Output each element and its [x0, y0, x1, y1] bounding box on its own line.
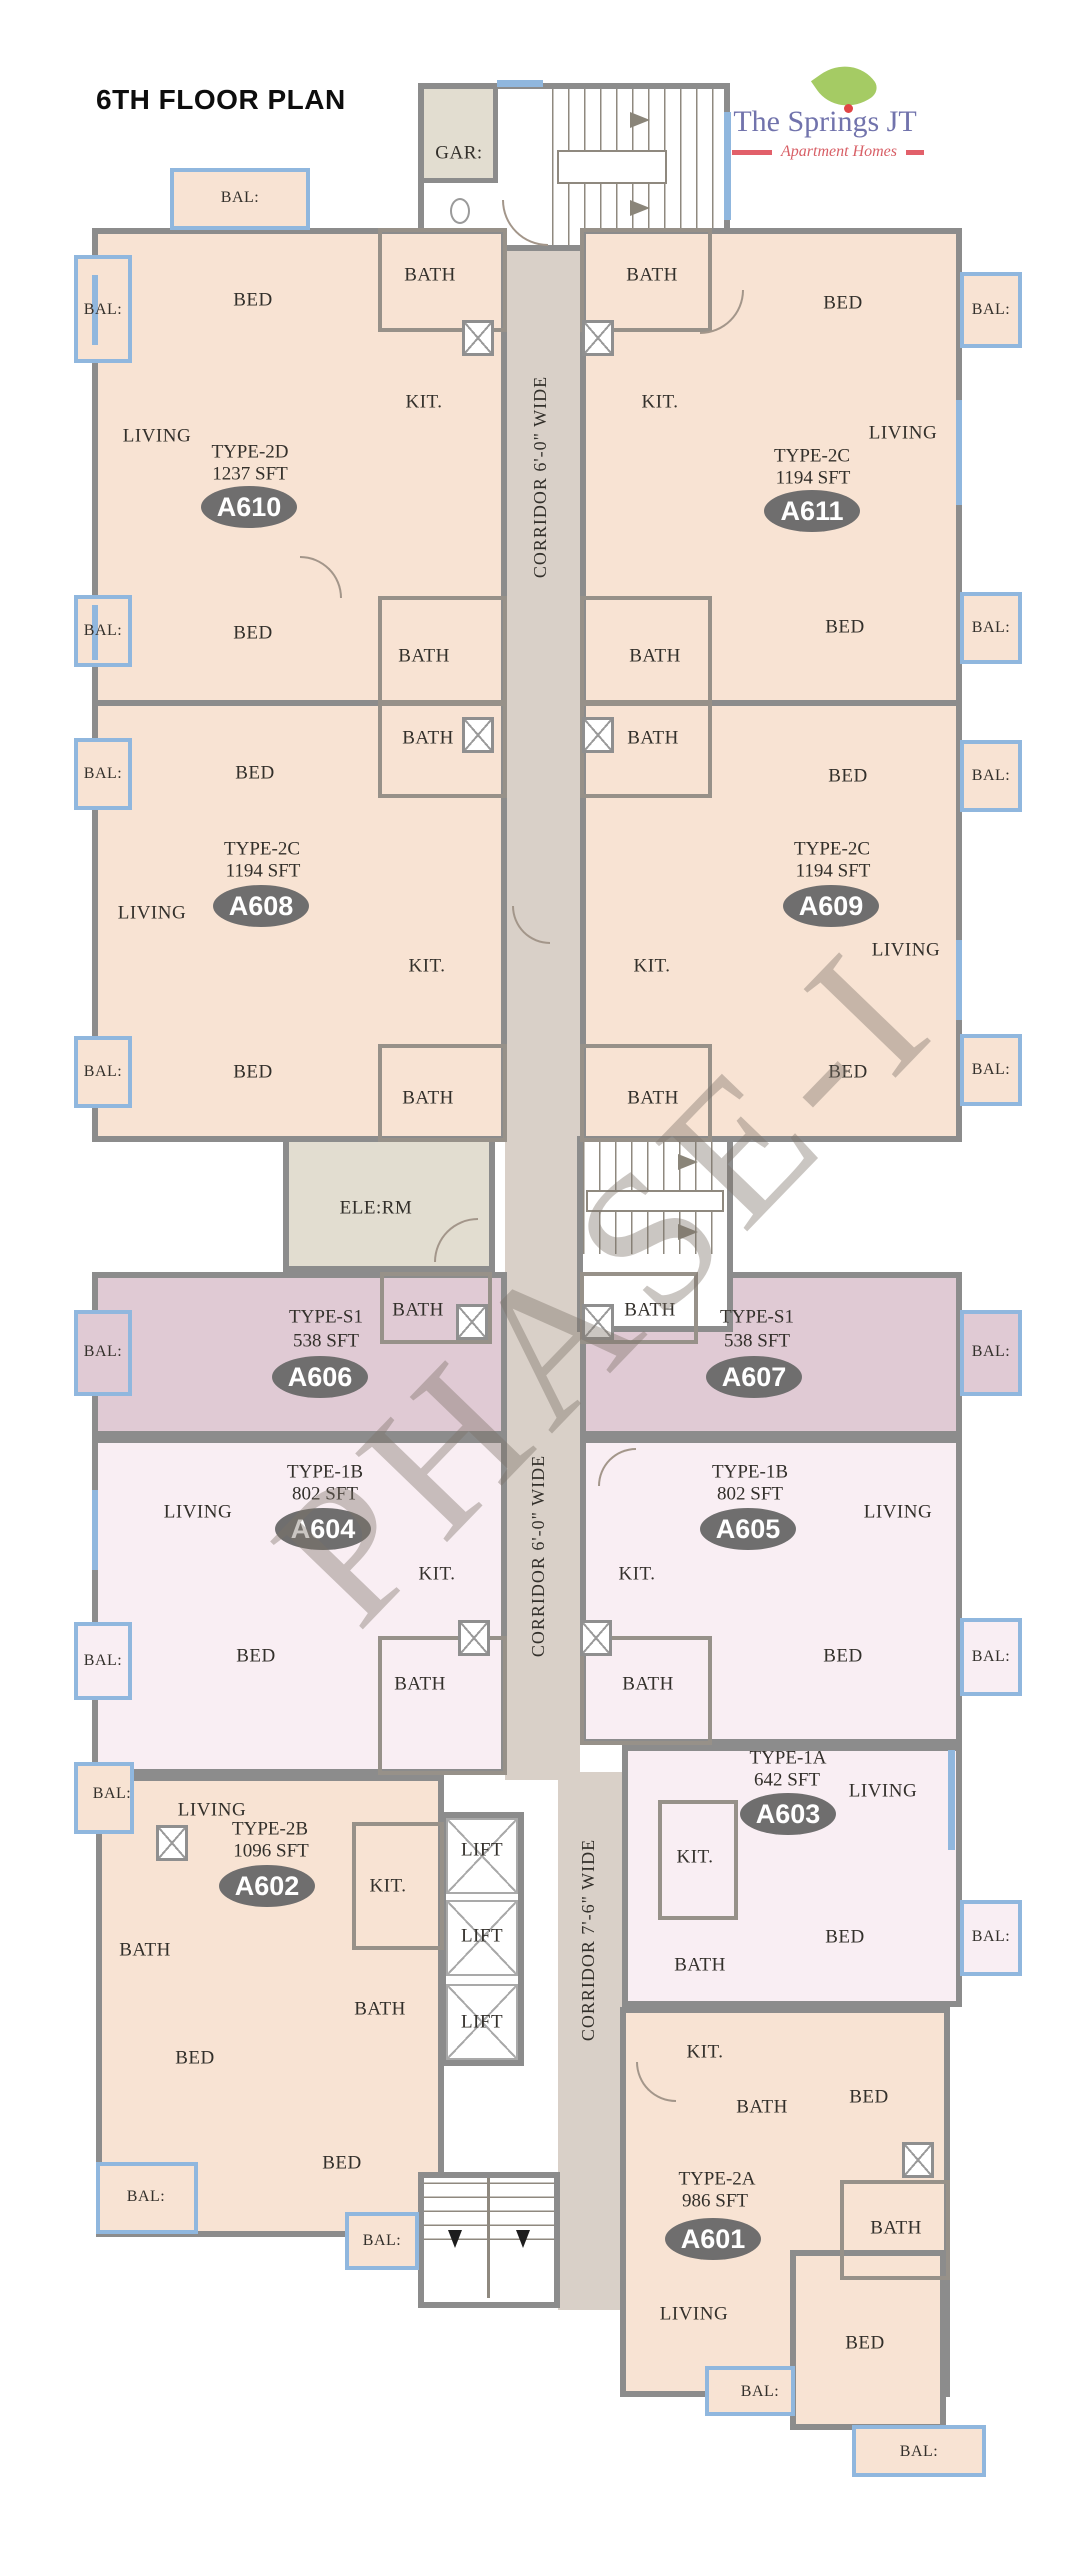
room-label-balcony: BAL:	[972, 1344, 1010, 1360]
room-label-balcony: BAL:	[900, 2444, 938, 2460]
unit-area-a608: 1194 SFT	[226, 862, 301, 881]
room-label-bath: BATH	[402, 729, 454, 748]
unit-area-a605: 802 SFT	[717, 1485, 783, 1504]
corridor-label-lower: CORRIDOR 7'-6" WIDE	[579, 1839, 597, 2041]
unit-type-a602: TYPE-2B	[232, 1820, 308, 1839]
unit-type-a606: TYPE-S1	[289, 1308, 363, 1327]
room-label-bed: BED	[825, 618, 865, 637]
room-label-living: LIVING	[164, 1503, 232, 1522]
room-label-bath: BATH	[627, 729, 679, 748]
page-title: 6TH FLOOR PLAN	[96, 84, 346, 116]
stairs-down-arrow-icon	[448, 2230, 462, 2248]
unit-area-a603: 642 SFT	[754, 1771, 820, 1790]
window-strip	[497, 80, 543, 87]
stairs-arrow-icon	[630, 112, 650, 128]
room-label-bed: BED	[849, 2088, 889, 2107]
unit-badge-a602: A602	[219, 1865, 315, 1907]
room-label-balcony: BAL:	[221, 190, 259, 206]
duct-shaft	[582, 717, 614, 753]
room-label-balcony: BAL:	[972, 1649, 1010, 1665]
duct-shaft	[462, 717, 494, 753]
unit-badge-a605: A605	[700, 1508, 796, 1550]
room-label-living: LIVING	[869, 424, 937, 443]
room-label-bath: BATH	[394, 1675, 446, 1694]
room-label-balcony: BAL:	[972, 1062, 1010, 1078]
room-label-bed: BED	[233, 1063, 273, 1082]
unit-area-a611: 1194 SFT	[776, 469, 851, 488]
room-label-bath: BATH	[119, 1941, 171, 1960]
room-label-kitchen: KIT.	[619, 1565, 656, 1584]
duct-shaft	[156, 1825, 188, 1861]
unit-area-a601: 986 SFT	[682, 2192, 748, 2211]
room-label-balcony: BAL:	[741, 2384, 779, 2400]
unit-badge-a608: A608	[213, 885, 309, 927]
room-label-bed: BED	[233, 624, 273, 643]
room-label-bath: BATH	[354, 2000, 406, 2019]
room-label-bath: BATH	[622, 1675, 674, 1694]
window-strip	[948, 1750, 955, 1850]
unit-type-a605: TYPE-1B	[712, 1463, 788, 1482]
room-label-living: LIVING	[123, 427, 191, 446]
room-label-balcony: BAL:	[84, 1653, 122, 1669]
unit-badge-a611: A611	[764, 490, 860, 532]
room-label-balcony: BAL:	[93, 1786, 131, 1802]
room-label-lift: LIFT	[461, 1841, 503, 1860]
stairs-down-arrow-icon	[516, 2230, 530, 2248]
unit-type-a610: TYPE-2D	[211, 443, 288, 462]
room-label-living: LIVING	[872, 941, 940, 960]
room-label-bed: BED	[235, 764, 275, 783]
unit-area-a602: 1096 SFT	[233, 1842, 309, 1861]
toilet-icon	[450, 198, 470, 224]
floor-plan-page: 6TH FLOOR PLAN The Springs JT Apartment …	[0, 0, 1075, 2560]
room-label-lift: LIFT	[461, 1927, 503, 1946]
room-label-gar: GAR:	[435, 144, 482, 163]
room-label-bed: BED	[823, 294, 863, 313]
room-label-lift: LIFT	[461, 2013, 503, 2032]
room-label-balcony: BAL:	[84, 623, 122, 639]
brand-tagline-row: Apartment Homes	[732, 143, 924, 161]
room-label-bed: BED	[236, 1647, 276, 1666]
room-label-balcony: BAL:	[84, 302, 122, 318]
brand-logo: The Springs JT Apartment Homes	[728, 60, 1028, 172]
room-label-kitchen: KIT.	[642, 393, 679, 412]
room-label-balcony: BAL:	[972, 1929, 1010, 1945]
window-strip	[724, 112, 731, 220]
unit-type-a601: TYPE-2A	[678, 2170, 755, 2189]
room-label-kitchen: KIT.	[406, 393, 443, 412]
room-label-balcony: BAL:	[972, 620, 1010, 636]
unit-type-a609: TYPE-2C	[794, 840, 870, 859]
room-label-bed: BED	[825, 1928, 865, 1947]
room-label-kitchen: KIT.	[370, 1877, 407, 1896]
stairs-arrow-icon	[630, 200, 650, 216]
tagline-bar-left	[732, 150, 772, 155]
duct-shaft	[462, 320, 494, 356]
room-label-bath: BATH	[404, 266, 456, 285]
unit-type-a611: TYPE-2C	[774, 447, 850, 466]
duct-shaft	[580, 1620, 612, 1656]
unit-area-a609: 1194 SFT	[796, 862, 871, 881]
room-label-bath: BATH	[674, 1956, 726, 1975]
brand-tagline: Apartment Homes	[781, 143, 897, 161]
unit-badge-a607: A607	[706, 1356, 802, 1398]
room-label-kitchen: KIT.	[409, 957, 446, 976]
window-strip	[956, 400, 962, 505]
room-label-bath: BATH	[870, 2219, 922, 2238]
room-label-kitchen: KIT.	[634, 957, 671, 976]
room-label-bath: BATH	[626, 266, 678, 285]
room-label-bed: BED	[175, 2049, 215, 2068]
room-label-living: LIVING	[849, 1782, 917, 1801]
room-label-bath: BATH	[629, 647, 681, 666]
top-stairs-landing	[557, 150, 667, 184]
bottom-stairs-rail	[487, 2178, 490, 2298]
room-label-living: LIVING	[118, 904, 186, 923]
room-label-living: LIVING	[178, 1801, 246, 1820]
unit-area-a610: 1237 SFT	[212, 465, 288, 484]
room-label-bed: BED	[233, 291, 273, 310]
room-label-kitchen: KIT.	[687, 2043, 724, 2062]
room-label-bed: BED	[845, 2334, 885, 2353]
unit-type-a608: TYPE-2C	[224, 840, 300, 859]
room-label-bed: BED	[823, 1647, 863, 1666]
room-label-ele-rm: ELE:RM	[340, 1199, 413, 1218]
unit-badge-a603: A603	[740, 1793, 836, 1835]
unit-badge-a601: A601	[665, 2218, 761, 2260]
room-label-bath: BATH	[402, 1089, 454, 1108]
unit-area-a606: 538 SFT	[293, 1332, 359, 1351]
room-label-bed: BED	[322, 2154, 362, 2173]
unit-type-a603: TYPE-1A	[749, 1749, 826, 1768]
duct-shaft	[902, 2142, 934, 2178]
room-label-living: LIVING	[864, 1503, 932, 1522]
unit-badge-a610: A610	[201, 486, 297, 528]
duct-shaft	[582, 320, 614, 356]
gar-room	[424, 89, 498, 183]
room-label-balcony: BAL:	[972, 302, 1010, 318]
room-label-living: LIVING	[660, 2305, 728, 2324]
duct-shaft	[458, 1620, 490, 1656]
room-label-balcony: BAL:	[84, 1344, 122, 1360]
window-strip	[956, 940, 962, 1020]
room-label-balcony: BAL:	[127, 2189, 165, 2205]
tagline-bar-right	[906, 150, 924, 155]
room-label-balcony: BAL:	[363, 2233, 401, 2249]
room-label-bed: BED	[828, 767, 868, 786]
room-label-kitchen: KIT.	[677, 1848, 714, 1867]
room-label-bath: BATH	[398, 647, 450, 666]
unit-area-a607: 538 SFT	[724, 1332, 790, 1351]
room-label-balcony: BAL:	[84, 766, 122, 782]
brand-name: The Springs JT	[733, 105, 916, 139]
window-strip	[92, 1490, 98, 1570]
room-label-bath: BATH	[736, 2098, 788, 2117]
corridor-label-upper: CORRIDOR 6'-0" WIDE	[531, 376, 549, 578]
room-label-balcony: BAL:	[84, 1064, 122, 1080]
room-label-balcony: BAL:	[972, 768, 1010, 784]
